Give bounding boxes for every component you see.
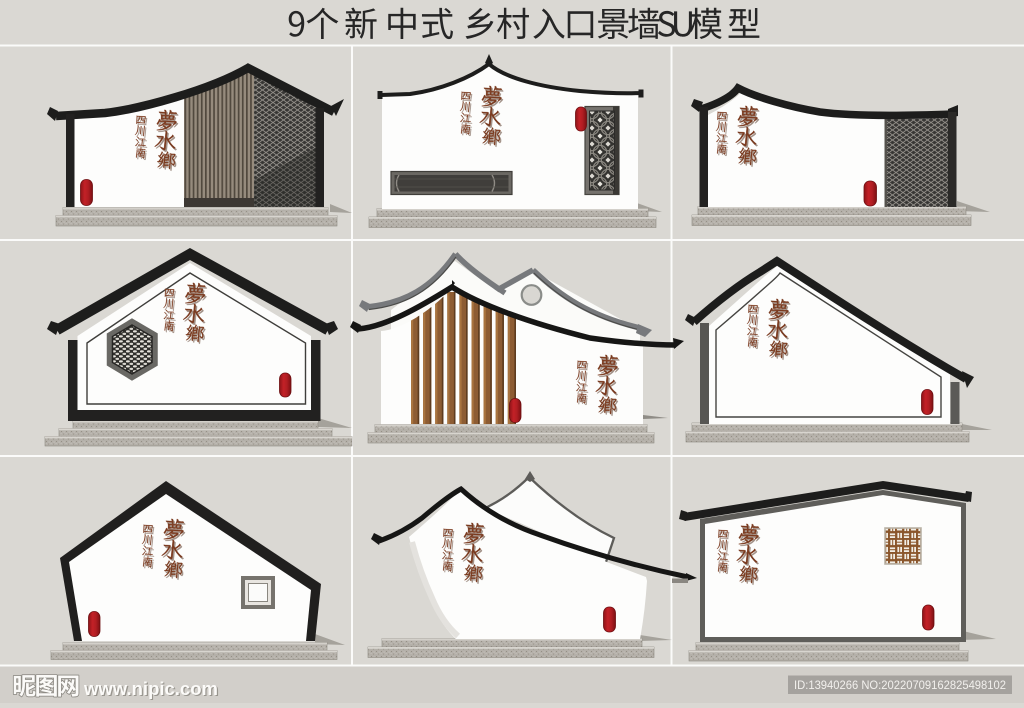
- svg-text:www.nipic.com: www.nipic.com: [83, 678, 218, 699]
- svg-text:ID:13940266 NO:202207091628254: ID:13940266 NO:20220709162825498102: [794, 678, 1006, 692]
